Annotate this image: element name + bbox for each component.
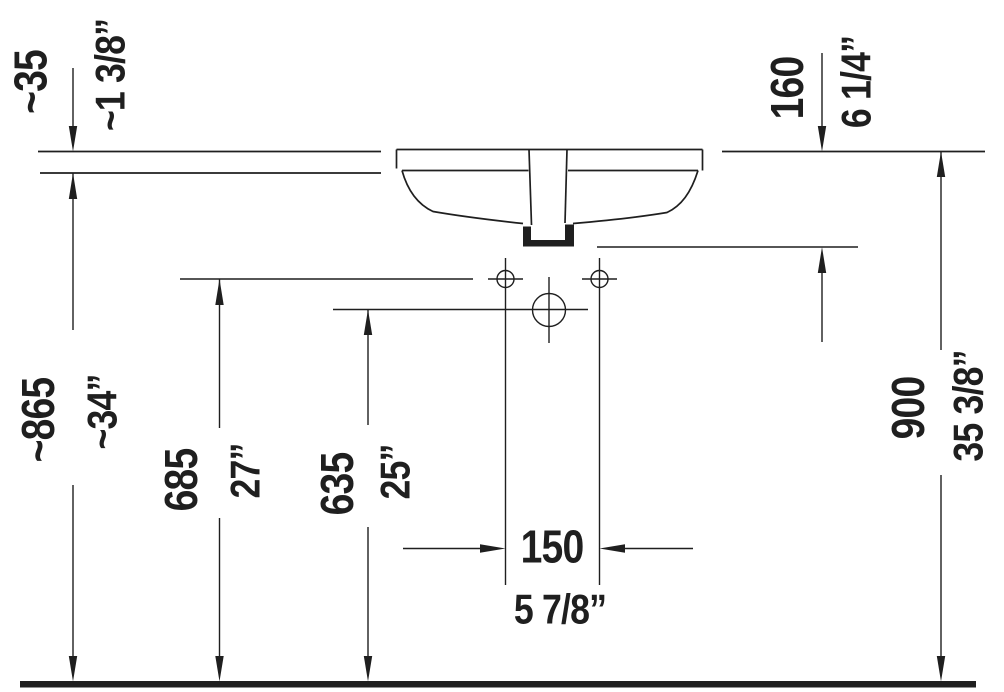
floor-line <box>20 681 976 688</box>
label-rim-to-outlet-mm: 160 <box>762 57 814 120</box>
label-counter-thickness-inch: ~1 3/8” <box>88 19 134 131</box>
label-floor-to-outlet-center-inch: 25” <box>373 445 419 500</box>
label-floor-to-rim-mm: 900 <box>883 377 935 440</box>
label-fixing-hole-spacing-inch: 5 7/8” <box>514 587 606 633</box>
label-fixing-hole-spacing-mm: 150 <box>521 522 584 574</box>
label-floor-to-underside-inch: ~34” <box>80 375 126 450</box>
dimension-lines <box>73 53 941 657</box>
label-rim-to-outlet-inch: 6 1/4” <box>834 36 880 128</box>
label-floor-to-fixing-holes-inch: 27” <box>223 444 269 499</box>
label-floor-to-underside-mm: ~865 <box>13 378 65 463</box>
arrow-down-icon <box>818 126 826 152</box>
drain-outlet <box>523 225 574 247</box>
label-floor-to-rim-inch: 35 3/8” <box>946 350 992 461</box>
dimension-drawing: ~35 ~1 3/8” 160 6 1/4” ~865 ~34” 685 27”… <box>0 0 1004 692</box>
dimension-drawing-page: ~35 ~1 3/8” 160 6 1/4” ~865 ~34” 685 27”… <box>0 0 1004 692</box>
arrow-up-icon <box>937 152 945 178</box>
arrowheads <box>69 126 945 682</box>
arrow-down-icon <box>937 656 945 682</box>
label-floor-to-outlet-center-mm: 635 <box>312 452 364 515</box>
arrow-down-icon <box>69 656 77 682</box>
arrow-up-icon <box>818 247 826 273</box>
overflow-tube-left <box>529 150 532 226</box>
dimension-labels: ~35 ~1 3/8” 160 6 1/4” ~865 ~34” 685 27”… <box>6 19 993 633</box>
arrow-left-icon <box>600 544 626 552</box>
arrow-right-icon <box>480 544 506 552</box>
label-counter-thickness-mm: ~35 <box>6 50 58 114</box>
arrow-up-icon <box>364 310 372 336</box>
arrow-up-icon <box>69 173 77 199</box>
overflow-tube-right <box>565 150 567 224</box>
basin-wall-right <box>573 171 698 224</box>
arrow-down-icon <box>364 656 372 682</box>
arrow-down-icon <box>69 126 77 152</box>
basin-wall-left <box>402 171 523 224</box>
arrow-down-icon <box>215 656 223 682</box>
label-floor-to-fixing-holes-mm: 685 <box>156 448 208 511</box>
washbasin-cross-section <box>397 150 703 226</box>
arrow-up-icon <box>215 279 223 305</box>
